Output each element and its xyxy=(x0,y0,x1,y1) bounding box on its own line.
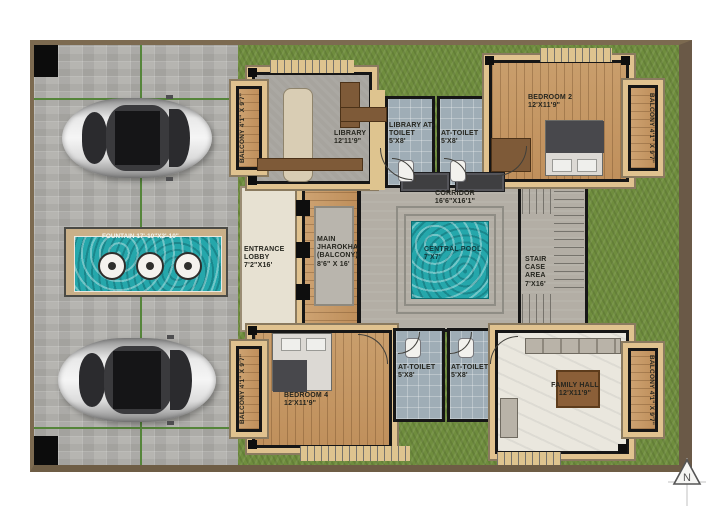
column xyxy=(296,200,310,216)
label-library-at-toilet: LIBRARY AT-TOILET5'X8' xyxy=(389,122,435,147)
car-bottom xyxy=(58,338,216,422)
car-windshield xyxy=(169,109,190,167)
label-at-toilet-top: AT-TOILET5'X8' xyxy=(441,130,487,146)
entry-steps xyxy=(497,452,561,465)
north-label: N xyxy=(683,472,691,484)
sofa xyxy=(525,338,621,354)
fountain-jet xyxy=(136,252,164,280)
fountain-jet xyxy=(98,252,126,280)
bed-pillow xyxy=(552,159,572,172)
floor-plan: FOUNTAIN 17'-10"X3'-10" xyxy=(0,0,715,512)
car-mirror xyxy=(166,177,173,181)
room-name: FOUNTAIN xyxy=(102,233,135,240)
bed xyxy=(545,120,603,176)
label-bedroom-4: BEDROOM 412'X11'9" xyxy=(284,392,374,408)
label-library: LIBRARY12'11'9" xyxy=(334,130,396,146)
bed xyxy=(272,333,332,391)
balcony-bottom-left: BALCONY 4'1" X 9'7" xyxy=(236,346,262,432)
fountain: FOUNTAIN 17'-10"X3'-10" xyxy=(64,227,228,297)
entry-steps xyxy=(270,60,354,73)
label-corridor: CORRIDOR16'6"X16'1" xyxy=(400,190,510,206)
column xyxy=(485,56,494,65)
column xyxy=(621,56,630,65)
car-mirror xyxy=(166,95,173,99)
bed-pillow xyxy=(577,159,597,172)
room-dims: 17'-10"X3'-10" xyxy=(136,233,179,240)
stair-treads xyxy=(522,294,556,328)
balcony-bottom-right: BALCONY 4'1" X 9'7" xyxy=(628,348,658,432)
column xyxy=(296,242,310,258)
balcony-label: BALCONY 4'1" X 9'7" xyxy=(239,89,259,167)
library-shelf xyxy=(340,107,387,122)
balcony-label: BALCONY 4'1" X 9'7" xyxy=(239,349,259,429)
balcony-top-right: BALCONY 4'1" X 9'7" xyxy=(628,85,658,171)
label-bedroom-2: BEDROOM 212'X11'9" xyxy=(528,94,618,110)
column xyxy=(248,440,257,449)
car-mirror xyxy=(167,421,174,425)
car-rear-window xyxy=(82,112,108,163)
label-staircase: STAIR CASE AREA7'X16' xyxy=(525,256,563,289)
label-at-toilet-bl: AT-TOILET5'X8' xyxy=(398,364,444,380)
car-mirror xyxy=(167,335,174,339)
balcony-label: BALCONY 4'1" X 9'7" xyxy=(631,351,655,429)
column xyxy=(248,68,257,77)
car-roof xyxy=(115,111,160,165)
entry-steps xyxy=(540,48,612,62)
bed-blanket xyxy=(273,360,307,392)
label-central-pool: CENTRAL POOL7'X7' xyxy=(424,246,484,262)
north-arrow-icon: N xyxy=(662,448,712,508)
label-entrance-lobby: ENTRANCE LOBBY7'2"X16' xyxy=(244,246,298,271)
column xyxy=(248,326,257,335)
bed-pillow xyxy=(281,338,301,351)
label-family-hall: FAMILY HALL12'X11'9" xyxy=(535,382,615,398)
car-rear-window xyxy=(79,353,106,407)
car-roof xyxy=(113,351,160,408)
bed-pillow xyxy=(306,338,326,351)
stair-treads xyxy=(522,188,556,214)
sofa xyxy=(500,398,518,438)
label-main-jharokha: MAIN JHAROKHA (BALCONY)8'6" X 16' xyxy=(317,236,357,269)
car-top xyxy=(62,98,212,178)
bed-blanket xyxy=(546,121,604,153)
fountain-jet xyxy=(174,252,202,280)
column xyxy=(296,284,310,300)
label-at-toilet-br: AT-TOILET5'X8' xyxy=(451,364,497,380)
entry-steps xyxy=(300,446,410,461)
fountain-label: FOUNTAIN 17'-10"X3'-10" xyxy=(102,233,232,240)
column xyxy=(248,176,257,185)
balcony-label: BALCONY 4'1" X 9'7" xyxy=(631,88,655,168)
column xyxy=(618,444,627,453)
library-bench xyxy=(257,158,363,171)
